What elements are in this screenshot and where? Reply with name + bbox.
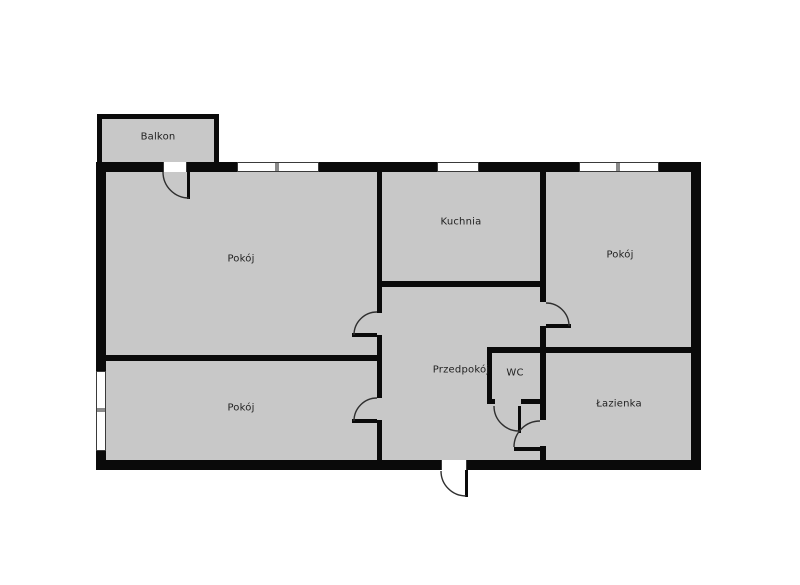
balcony-wall-left: [97, 114, 102, 162]
window-top-right-mullion: [616, 163, 620, 171]
entrance-door-opening: [441, 460, 467, 470]
entrance-door-leaf: [465, 470, 468, 497]
wall-kitchen-bottom: [377, 281, 546, 287]
wall-left-rooms-divider: [106, 355, 382, 361]
wall-wc-bottom-left-segment: [487, 399, 495, 404]
room-right-door-leaf: [546, 324, 571, 328]
room-top-left-door-leaf: [352, 333, 377, 337]
balcony-door-leaf: [187, 172, 190, 199]
outer-wall-right: [691, 162, 701, 470]
outer-wall-bottom: [96, 460, 701, 470]
wall-right-vertical-middle: [540, 326, 546, 420]
window-kitchen: [437, 162, 479, 172]
bathroom-door-leaf: [514, 447, 540, 451]
wall-left-rooms-vertical-middle: [377, 335, 382, 398]
room-label-przedpokoj: Przedpokój: [433, 365, 490, 376]
wall-left-rooms-vertical-upper: [377, 172, 382, 313]
wall-wc-left: [487, 347, 492, 404]
room-label-pokoj-right: Pokój: [606, 250, 633, 261]
window-left-wall-mullion: [97, 408, 105, 412]
room-bottom-left-door-leaf: [352, 419, 377, 423]
room-label-pokoj-bottom-left: Pokój: [227, 403, 254, 414]
wall-wc-top: [487, 347, 540, 353]
wall-left-rooms-vertical-lower: [377, 420, 382, 460]
balcony-wall-top: [97, 114, 219, 119]
entrance-door-arc: [441, 471, 466, 496]
apartment-floor: [96, 162, 701, 470]
room-label-wc: WC: [506, 368, 523, 379]
window-top-left-mullion: [275, 163, 279, 171]
balcony-door-opening: [163, 162, 187, 172]
balcony-wall-right: [214, 114, 219, 162]
room-label-kuchnia: Kuchnia: [441, 217, 482, 228]
wc-door-leaf: [518, 406, 521, 433]
floor-plan: Balkon Pokój Kuchnia Pokój Pokój Przedpo…: [0, 0, 800, 585]
room-label-pokoj-top-left: Pokój: [227, 254, 254, 265]
room-label-balkon: Balkon: [141, 132, 176, 143]
wall-right-vertical-lower: [540, 446, 546, 460]
wall-wc-bottom-right-segment: [521, 399, 540, 404]
wall-bathroom-top: [540, 347, 691, 353]
room-label-lazienka: Łazienka: [596, 399, 642, 410]
